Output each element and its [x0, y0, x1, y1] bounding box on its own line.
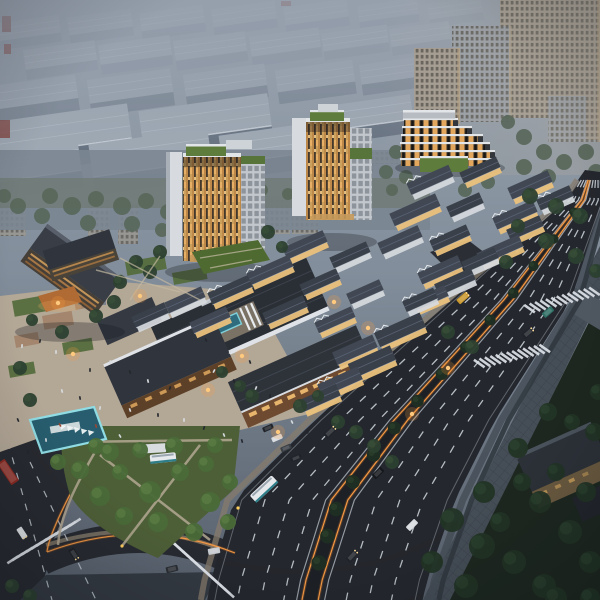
vignette — [0, 0, 600, 600]
aerial-render-stage: Aerial dusk rendering of a mixed-use dev… — [0, 0, 600, 600]
aerial-render: Aerial dusk rendering of a mixed-use dev… — [0, 0, 600, 600]
